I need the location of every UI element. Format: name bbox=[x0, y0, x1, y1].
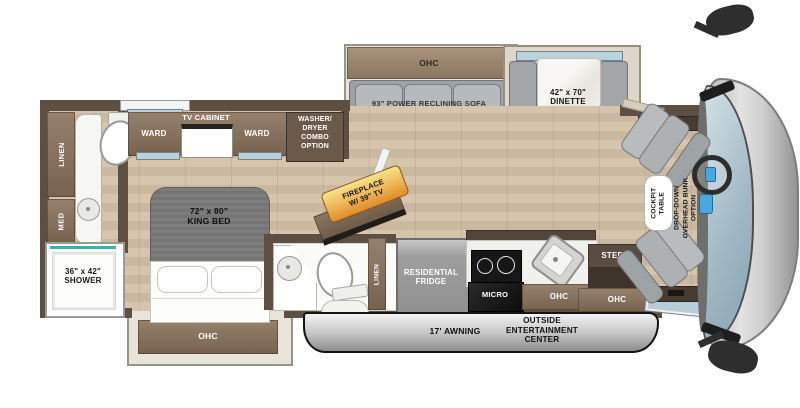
cooktop-burner bbox=[477, 258, 493, 274]
cooktop-burner bbox=[497, 256, 515, 274]
bunk-note-wrap: DROP-DOWN OVERHEAD BUNK OPTION bbox=[662, 156, 710, 260]
rear-linen-label: LINEN bbox=[57, 142, 66, 167]
washer-dryer-label: WASHER/ DRYER COMBO OPTION bbox=[286, 115, 344, 151]
side-mirror-bottom bbox=[705, 336, 761, 377]
fridge-label: RESIDENTIAL FRIDGE bbox=[396, 268, 466, 286]
rear-linen-label-wrap: LINEN bbox=[47, 112, 75, 197]
cabinet-toe-glass-left bbox=[136, 152, 180, 160]
rv-floorplan: OHC 93" POWER RECLINING SOFA 42" x 70" D… bbox=[0, 0, 800, 408]
top-wall-left bbox=[40, 100, 350, 111]
corner-sink-faucet bbox=[286, 265, 290, 269]
ward-right-label: WARD bbox=[232, 129, 282, 138]
shower-threshold bbox=[50, 246, 116, 249]
mid-med-label: MED bbox=[279, 280, 296, 297]
ward-left-label: WARD bbox=[130, 129, 178, 138]
entertainment-label: OUTSIDE ENTERTAINMENT CENTER bbox=[487, 316, 597, 345]
vanity-counter bbox=[75, 114, 102, 244]
blanket-fold bbox=[152, 298, 266, 299]
micro-label: MICRO bbox=[468, 291, 522, 300]
bed-ohc-label: OHC bbox=[138, 331, 278, 341]
tv-cabinet-label: TV CABINET bbox=[176, 114, 236, 123]
shower-label: 36" x 42" SHOWER bbox=[47, 267, 119, 286]
cabinet-toe-glass-right bbox=[238, 152, 282, 160]
tv-cabinet-box bbox=[181, 124, 233, 158]
pillow bbox=[211, 266, 262, 293]
bunk-note-label: DROP-DOWN OVERHEAD BUNK OPTION bbox=[673, 178, 699, 239]
king-bed-label: 72" x 80" KING BED bbox=[150, 206, 268, 226]
dinette-label: 42" x 70" DINETTE bbox=[535, 88, 601, 107]
mid-linen-label-wrap: LINEN bbox=[368, 238, 386, 310]
mid-linen-label: LINEN bbox=[374, 263, 381, 285]
pillow bbox=[157, 266, 208, 293]
sofa-ohc-label: OHC bbox=[347, 58, 511, 68]
kitchen-faucet bbox=[553, 257, 558, 262]
mid-med-label-wrap: MED bbox=[271, 276, 305, 302]
rear-med-label: MED bbox=[57, 212, 66, 230]
rear-med-label-wrap: MED bbox=[47, 199, 75, 243]
vanity-faucet bbox=[86, 207, 90, 211]
